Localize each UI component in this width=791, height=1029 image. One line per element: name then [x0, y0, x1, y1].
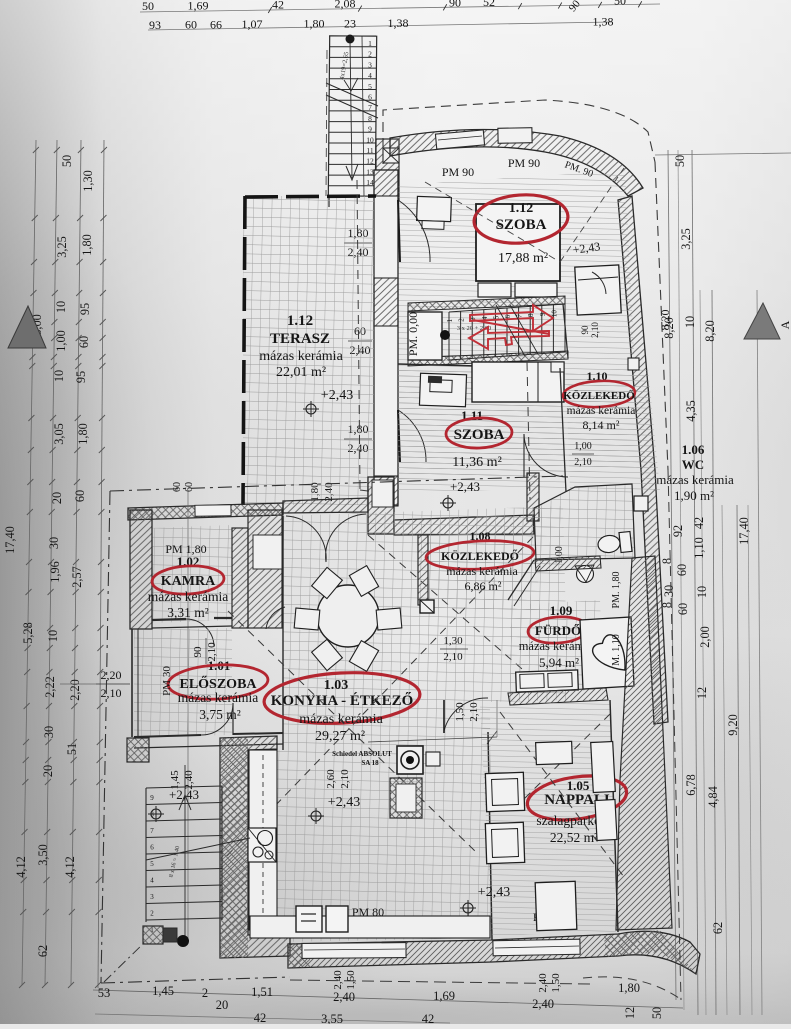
- svg-text:5,28: 5,28: [21, 622, 35, 644]
- svg-text:2: 2: [368, 50, 372, 59]
- svg-text:9,20: 9,20: [726, 714, 740, 736]
- svg-text:3,05: 3,05: [52, 423, 66, 445]
- svg-text:mázas kerámia: mázas kerámia: [259, 349, 343, 364]
- svg-text:50: 50: [673, 155, 687, 167]
- svg-text:2,10: 2,10: [468, 702, 480, 722]
- svg-text:2: 2: [202, 986, 208, 1000]
- svg-text:1,80: 1,80: [304, 17, 325, 31]
- svg-text:90: 90: [580, 325, 590, 335]
- svg-text:4: 4: [150, 877, 154, 885]
- svg-text:1,00: 1,00: [574, 441, 592, 452]
- svg-text:2,40: 2,40: [183, 770, 195, 790]
- svg-text:2,10: 2,10: [443, 651, 463, 663]
- svg-text:60: 60: [675, 564, 689, 576]
- svg-text:13: 13: [366, 167, 374, 176]
- svg-text:8,20: 8,20: [703, 320, 717, 342]
- svg-text:92: 92: [671, 525, 685, 537]
- svg-text:10: 10: [54, 301, 68, 313]
- svg-text:8: 8: [527, 313, 535, 317]
- svg-text:1,30: 1,30: [81, 170, 95, 192]
- svg-text:2,10: 2,10: [101, 686, 122, 700]
- svg-text:1,69: 1,69: [433, 989, 455, 1003]
- svg-text:1.03: 1.03: [324, 678, 349, 693]
- svg-text:1: 1: [368, 39, 372, 48]
- svg-text:SA 18: SA 18: [361, 759, 379, 767]
- svg-text:6: 6: [504, 315, 512, 319]
- svg-text:mázas kerámia: mázas kerámia: [446, 564, 518, 578]
- svg-text:5: 5: [150, 860, 154, 868]
- svg-text:20: 20: [216, 998, 229, 1012]
- svg-text:2,00: 2,00: [698, 626, 712, 648]
- svg-text:42: 42: [422, 1012, 435, 1024]
- svg-text:12: 12: [695, 687, 709, 699]
- svg-text:4,35: 4,35: [684, 400, 698, 422]
- svg-text:60: 60: [172, 482, 183, 492]
- svg-text:11,36 m²: 11,36 m²: [452, 455, 502, 470]
- svg-text:42: 42: [254, 1011, 267, 1024]
- svg-text:1,80: 1,80: [76, 423, 90, 445]
- svg-text:53: 53: [98, 986, 111, 1000]
- svg-text:22,52 m²: 22,52 m²: [550, 830, 598, 845]
- svg-text:KÖZLEKEDŐ: KÖZLEKEDŐ: [441, 548, 519, 563]
- svg-text:mázas kerámia: mázas kerámia: [148, 589, 229, 604]
- svg-text:+2,43: +2,43: [450, 479, 480, 494]
- svg-text:4,84: 4,84: [706, 786, 720, 808]
- svg-text:1.05: 1.05: [567, 778, 590, 793]
- svg-text:1,50: 1,50: [550, 973, 562, 993]
- svg-text:2: 2: [150, 910, 154, 918]
- svg-text:20: 20: [50, 492, 64, 504]
- svg-text:3,31 m²: 3,31 m²: [167, 605, 209, 620]
- svg-text:WC: WC: [682, 457, 704, 472]
- svg-text:2,40: 2,40: [532, 997, 554, 1011]
- svg-text:A: A: [778, 320, 791, 329]
- svg-text:SZOBA: SZOBA: [454, 427, 505, 443]
- svg-text:1,80: 1,80: [80, 234, 94, 256]
- svg-text:42: 42: [272, 0, 284, 11]
- svg-text:4,12: 4,12: [14, 856, 28, 878]
- svg-text:62: 62: [36, 945, 50, 957]
- svg-text:4: 4: [368, 71, 372, 80]
- svg-text:30: 30: [42, 726, 56, 738]
- svg-text:2,40: 2,40: [332, 970, 344, 990]
- svg-text:2,40: 2,40: [537, 973, 549, 993]
- svg-text:50: 50: [614, 0, 626, 7]
- svg-text:M. 1,10: M. 1,10: [611, 634, 622, 665]
- svg-text:1,00: 1,00: [54, 330, 68, 352]
- svg-text:50: 50: [60, 155, 74, 167]
- svg-text:2,10: 2,10: [590, 322, 600, 338]
- svg-text:60: 60: [185, 18, 197, 32]
- svg-text:2,08: 2,08: [335, 0, 356, 11]
- svg-text:12: 12: [623, 1007, 637, 1019]
- svg-text:30: 30: [662, 585, 676, 597]
- svg-text:20: 20: [41, 765, 55, 777]
- svg-text:PM 90: PM 90: [442, 165, 474, 179]
- svg-text:60: 60: [73, 490, 87, 502]
- svg-text:1,69: 1,69: [188, 0, 209, 12]
- svg-text:2,57: 2,57: [70, 566, 84, 588]
- svg-text:3,75 m²: 3,75 m²: [199, 707, 241, 722]
- svg-text:62: 62: [711, 922, 725, 934]
- svg-text:3,25: 3,25: [679, 228, 693, 250]
- svg-text:KÖZLEKEDŐ: KÖZLEKEDŐ: [563, 389, 635, 402]
- svg-text:8: 8: [660, 558, 674, 564]
- svg-text:2: 2: [458, 318, 466, 322]
- svg-text:6: 6: [150, 844, 154, 852]
- svg-text:90: 90: [192, 646, 204, 658]
- svg-text:10: 10: [683, 316, 697, 328]
- svg-text:95: 95: [74, 371, 88, 383]
- svg-text:10: 10: [695, 586, 709, 598]
- svg-text:2,10: 2,10: [574, 457, 592, 468]
- svg-text:2,60: 2,60: [325, 769, 337, 789]
- svg-text:mázas kerámia: mázas kerámia: [178, 690, 259, 705]
- svg-text:10: 10: [46, 630, 60, 642]
- svg-text:22,01 m²: 22,01 m²: [276, 365, 326, 380]
- svg-text:1.06: 1.06: [682, 442, 705, 457]
- svg-text:6,78: 6,78: [684, 774, 698, 796]
- svg-text:9: 9: [150, 794, 154, 802]
- svg-text:PM 30: PM 30: [161, 666, 173, 696]
- svg-text:5: 5: [368, 82, 372, 91]
- svg-text:PM 90: PM 90: [508, 156, 540, 170]
- svg-text:TERASZ: TERASZ: [270, 331, 330, 347]
- svg-text:KONYHA - ÉTKEZŐ: KONYHA - ÉTKEZŐ: [271, 692, 414, 709]
- svg-text:50: 50: [142, 0, 154, 13]
- svg-text:14: 14: [366, 178, 374, 187]
- svg-text:1,90 m²: 1,90 m²: [674, 488, 714, 503]
- svg-text:29,27 m²: 29,27 m²: [315, 729, 365, 744]
- svg-text:mázas kerámia: mázas kerámia: [299, 712, 383, 727]
- svg-text:1,50: 1,50: [454, 702, 466, 722]
- svg-text:9: 9: [368, 125, 372, 134]
- svg-text:+2,43: +2,43: [328, 795, 360, 810]
- svg-text:1,45: 1,45: [169, 770, 181, 790]
- svg-text:Schiedel ABSOLUT: Schiedel ABSOLUT: [332, 750, 392, 758]
- svg-text:+2,43: +2,43: [478, 885, 510, 900]
- svg-text:17,40: 17,40: [3, 526, 17, 554]
- svg-text:3,55: 3,55: [321, 1012, 343, 1024]
- svg-text:8,20: 8,20: [658, 310, 672, 331]
- svg-text:1.12: 1.12: [287, 313, 313, 329]
- svg-text:PM 80: PM 80: [352, 905, 384, 919]
- svg-text:11: 11: [366, 146, 373, 155]
- svg-text:6: 6: [368, 93, 372, 102]
- svg-text:3: 3: [150, 893, 154, 901]
- svg-text:KAMRA: KAMRA: [161, 574, 216, 589]
- svg-text:30: 30: [47, 537, 61, 549]
- svg-text:60: 60: [676, 603, 690, 615]
- svg-text:6,86 m²: 6,86 m²: [465, 579, 502, 593]
- svg-text:PM. 1,80: PM. 1,80: [611, 572, 622, 609]
- svg-text:95: 95: [78, 303, 92, 315]
- svg-text:1,10: 1,10: [692, 537, 706, 559]
- svg-text:2,20: 2,20: [68, 679, 82, 701]
- svg-text:93: 93: [149, 18, 161, 32]
- svg-text:1,38: 1,38: [388, 16, 409, 30]
- svg-text:1,50: 1,50: [345, 970, 357, 990]
- svg-text:1.12: 1.12: [509, 201, 534, 216]
- svg-text:2,10: 2,10: [339, 769, 351, 789]
- svg-text:2,22: 2,22: [43, 676, 57, 698]
- svg-text:10: 10: [366, 135, 374, 144]
- svg-text:7: 7: [150, 827, 154, 835]
- svg-text:+2,43: +2,43: [321, 388, 353, 403]
- svg-text:17,88 m²: 17,88 m²: [498, 251, 548, 266]
- svg-text:3: 3: [368, 60, 372, 69]
- svg-text:60: 60: [184, 482, 195, 492]
- svg-text:10: 10: [52, 370, 66, 382]
- svg-text:17,40: 17,40: [737, 517, 751, 545]
- svg-text:50: 50: [650, 1007, 664, 1019]
- svg-text:4,12: 4,12: [63, 856, 77, 878]
- svg-text:7: 7: [368, 103, 372, 112]
- svg-text:PM. 0,00: PM. 0,00: [406, 312, 420, 356]
- svg-text:1,96: 1,96: [48, 561, 62, 583]
- svg-text:1: 1: [446, 319, 454, 323]
- svg-text:52: 52: [483, 0, 495, 9]
- svg-text:12: 12: [366, 157, 374, 166]
- svg-text:5,94 m²: 5,94 m²: [539, 655, 579, 670]
- svg-text:23: 23: [344, 16, 356, 30]
- svg-text:1,45: 1,45: [152, 984, 174, 998]
- svg-text:mázas kerámia: mázas kerámia: [567, 405, 636, 417]
- svg-text:FÜRDŐ: FÜRDŐ: [535, 623, 581, 638]
- svg-text:1,51: 1,51: [251, 985, 273, 999]
- svg-text:3,50: 3,50: [36, 844, 50, 866]
- svg-text:1,30: 1,30: [443, 635, 463, 647]
- svg-text:3,25: 3,25: [55, 236, 69, 258]
- svg-text:2,40: 2,40: [333, 990, 355, 1004]
- svg-text:66: 66: [210, 17, 222, 31]
- svg-text:SZOBA: SZOBA: [496, 217, 547, 233]
- svg-text:1,80: 1,80: [618, 981, 640, 995]
- svg-text:1,07: 1,07: [242, 17, 263, 31]
- svg-text:42: 42: [692, 517, 706, 529]
- svg-text:90: 90: [449, 0, 461, 9]
- svg-text:8,14 m²: 8,14 m²: [583, 418, 620, 432]
- svg-text:1,38: 1,38: [593, 14, 614, 28]
- svg-text:2,20: 2,20: [101, 668, 122, 682]
- svg-text:2,10: 2,10: [206, 642, 218, 662]
- svg-text:51: 51: [65, 743, 79, 755]
